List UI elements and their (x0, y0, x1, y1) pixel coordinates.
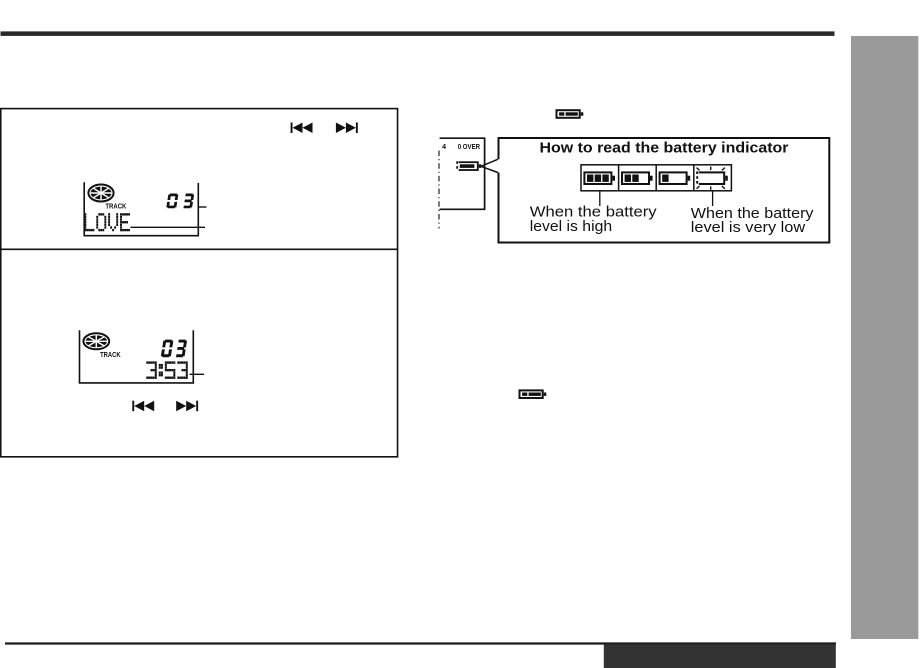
svg-text:level is very low: level is very low (691, 220, 806, 236)
svg-text:TRACK: TRACK (100, 350, 121, 359)
svg-text:level is high: level is high (530, 219, 612, 235)
svg-text:TRACK: TRACK (105, 202, 126, 211)
svg-text:4: 4 (442, 142, 447, 151)
svg-text:How to read the battery indica: How to read the battery indicator (540, 141, 789, 157)
svg-text:0 OVER: 0 OVER (458, 142, 481, 151)
